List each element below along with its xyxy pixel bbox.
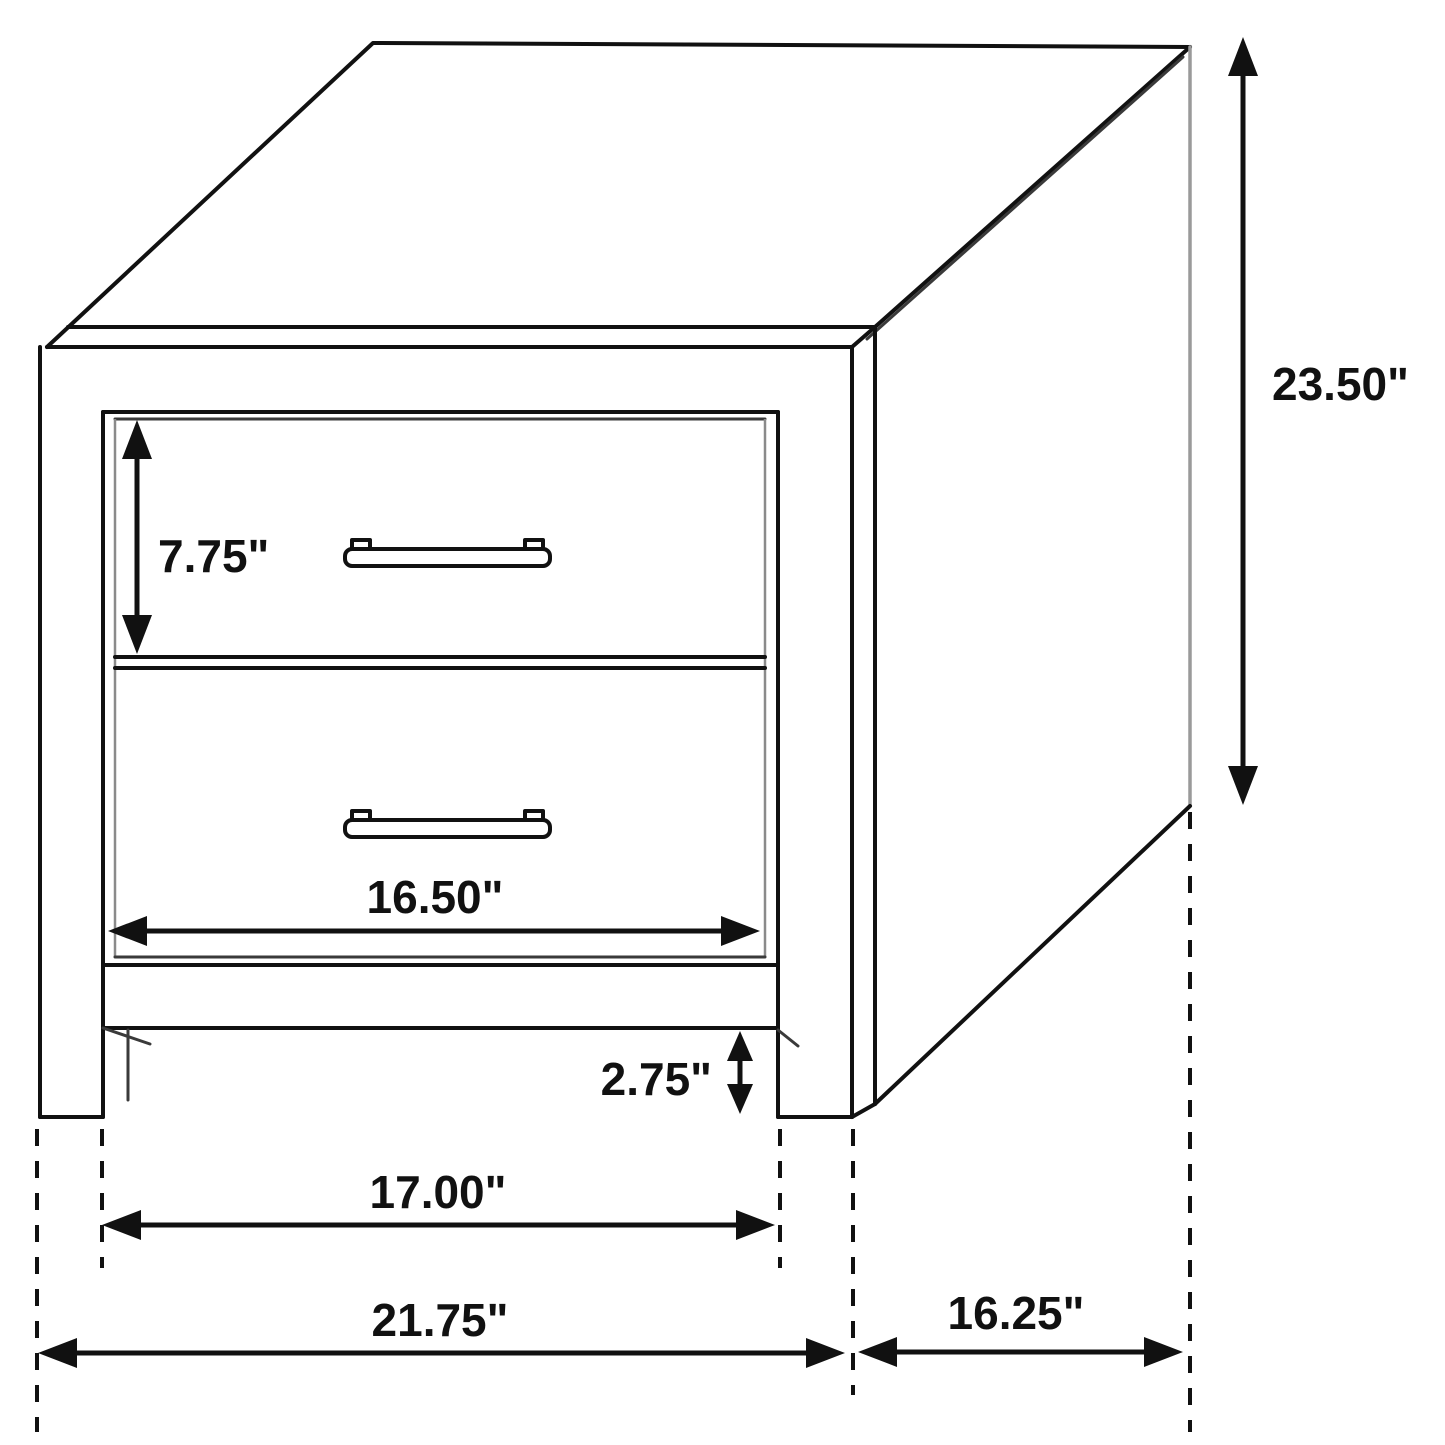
dim-overall-depth-label: 16.25" bbox=[948, 1287, 1085, 1339]
dim-overall-height-label: 23.50" bbox=[1272, 358, 1409, 410]
arrow-down-icon bbox=[727, 1084, 753, 1114]
top-back-left-edges bbox=[47, 43, 1190, 347]
dim-drawer-height-label: 7.75" bbox=[158, 530, 269, 582]
dim-drawer-width-label: 16.50" bbox=[367, 871, 504, 923]
dim-foot-height-label: 2.75" bbox=[601, 1053, 712, 1105]
dim-inner-width-label: 17.00" bbox=[370, 1166, 507, 1218]
arrow-left-icon bbox=[858, 1337, 897, 1367]
handle-bar bbox=[345, 820, 550, 837]
arrow-right-icon bbox=[721, 916, 760, 946]
handle-bar bbox=[345, 549, 550, 566]
projection-lines bbox=[37, 812, 1190, 1432]
arrow-right-icon bbox=[806, 1338, 845, 1368]
top-right-edge bbox=[875, 47, 1190, 327]
right-leg-bottom-corner bbox=[852, 1104, 875, 1117]
dim-overall-depth: 16.25" bbox=[858, 1287, 1183, 1367]
arrow-left-icon bbox=[38, 1338, 77, 1368]
dim-drawer-width: 16.50" bbox=[108, 871, 760, 946]
nightstand-top-face bbox=[47, 43, 1190, 347]
dim-foot-height: 2.75" bbox=[601, 1031, 753, 1114]
arrow-right-icon bbox=[1144, 1337, 1183, 1367]
dim-drawer-height: 7.75" bbox=[122, 420, 269, 654]
dim-overall-width: 21.75" bbox=[38, 1294, 845, 1368]
dim-overall-width-label: 21.75" bbox=[372, 1294, 509, 1346]
arrow-up-icon bbox=[1228, 37, 1258, 76]
side-bottom-edge bbox=[875, 806, 1190, 1104]
arrow-up-icon bbox=[122, 420, 152, 459]
dim-overall-height: 23.50" bbox=[1228, 37, 1409, 805]
top-front-right-corner bbox=[852, 327, 875, 347]
arrow-left-icon bbox=[102, 1210, 141, 1240]
drawer-bottom-handle bbox=[345, 811, 550, 837]
arrow-right-icon bbox=[736, 1210, 775, 1240]
dimension-diagram: 7.75" 16.50" 2.75" 17.00" 21.75" 16.25" bbox=[0, 0, 1445, 1445]
drawer-top-handle bbox=[345, 540, 550, 566]
arrow-down-icon bbox=[122, 615, 152, 654]
nightstand-front-face bbox=[40, 347, 875, 1117]
arrow-up-icon bbox=[727, 1031, 753, 1061]
nightstand-right-side-panel bbox=[875, 47, 1190, 1104]
dim-inner-width: 17.00" bbox=[102, 1166, 775, 1240]
top-right-edge-inner bbox=[867, 57, 1183, 339]
nightstand-line-drawing: 7.75" 16.50" 2.75" 17.00" 21.75" 16.25" bbox=[0, 0, 1445, 1445]
right-leg-inner-top-slant bbox=[778, 1030, 798, 1046]
arrow-down-icon bbox=[1228, 766, 1258, 805]
